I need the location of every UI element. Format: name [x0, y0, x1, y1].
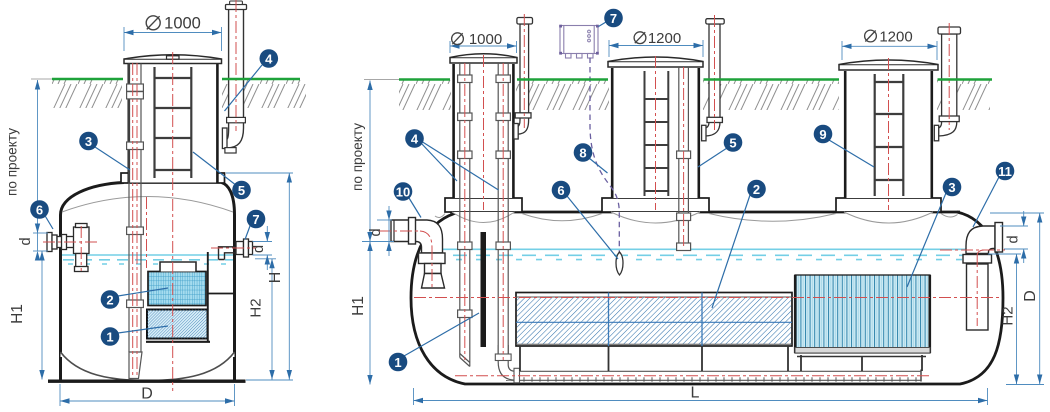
svg-text:H2: H2: [1000, 306, 1017, 325]
svg-text:7: 7: [610, 11, 617, 26]
svg-text:1000: 1000: [164, 15, 201, 33]
svg-text:5: 5: [729, 135, 736, 150]
svg-text:d: d: [251, 245, 267, 253]
svg-text:7: 7: [252, 212, 259, 227]
svg-text:6: 6: [557, 183, 564, 198]
svg-text:1200: 1200: [648, 30, 681, 47]
svg-text:11: 11: [998, 164, 1012, 179]
svg-text:8: 8: [579, 145, 586, 160]
svg-text:3: 3: [85, 134, 92, 149]
svg-text:6: 6: [36, 202, 43, 217]
svg-text:1200: 1200: [879, 28, 912, 45]
svg-text:H: H: [267, 272, 284, 284]
svg-text:d: d: [368, 228, 384, 236]
svg-text:4: 4: [265, 51, 273, 66]
svg-text:2: 2: [753, 182, 760, 197]
svg-text:1000: 1000: [469, 31, 502, 48]
svg-text:d: d: [18, 237, 34, 245]
svg-text:H2: H2: [248, 298, 265, 317]
svg-text:по проекту: по проекту: [5, 128, 20, 196]
svg-text:H1: H1: [350, 296, 367, 316]
svg-text:9: 9: [819, 127, 826, 142]
svg-text:4: 4: [411, 131, 419, 146]
svg-text:по проекту: по проекту: [350, 123, 365, 191]
svg-text:2: 2: [106, 292, 113, 307]
svg-text:D: D: [1022, 290, 1039, 302]
svg-text:L: L: [691, 385, 700, 402]
svg-text:10: 10: [396, 184, 410, 199]
svg-text:D: D: [141, 386, 153, 403]
svg-text:1: 1: [106, 329, 113, 344]
svg-text:d: d: [1006, 235, 1022, 243]
svg-text:H1: H1: [9, 304, 26, 324]
svg-text:1: 1: [394, 355, 401, 370]
svg-text:3: 3: [948, 180, 955, 195]
svg-text:5: 5: [238, 183, 245, 198]
